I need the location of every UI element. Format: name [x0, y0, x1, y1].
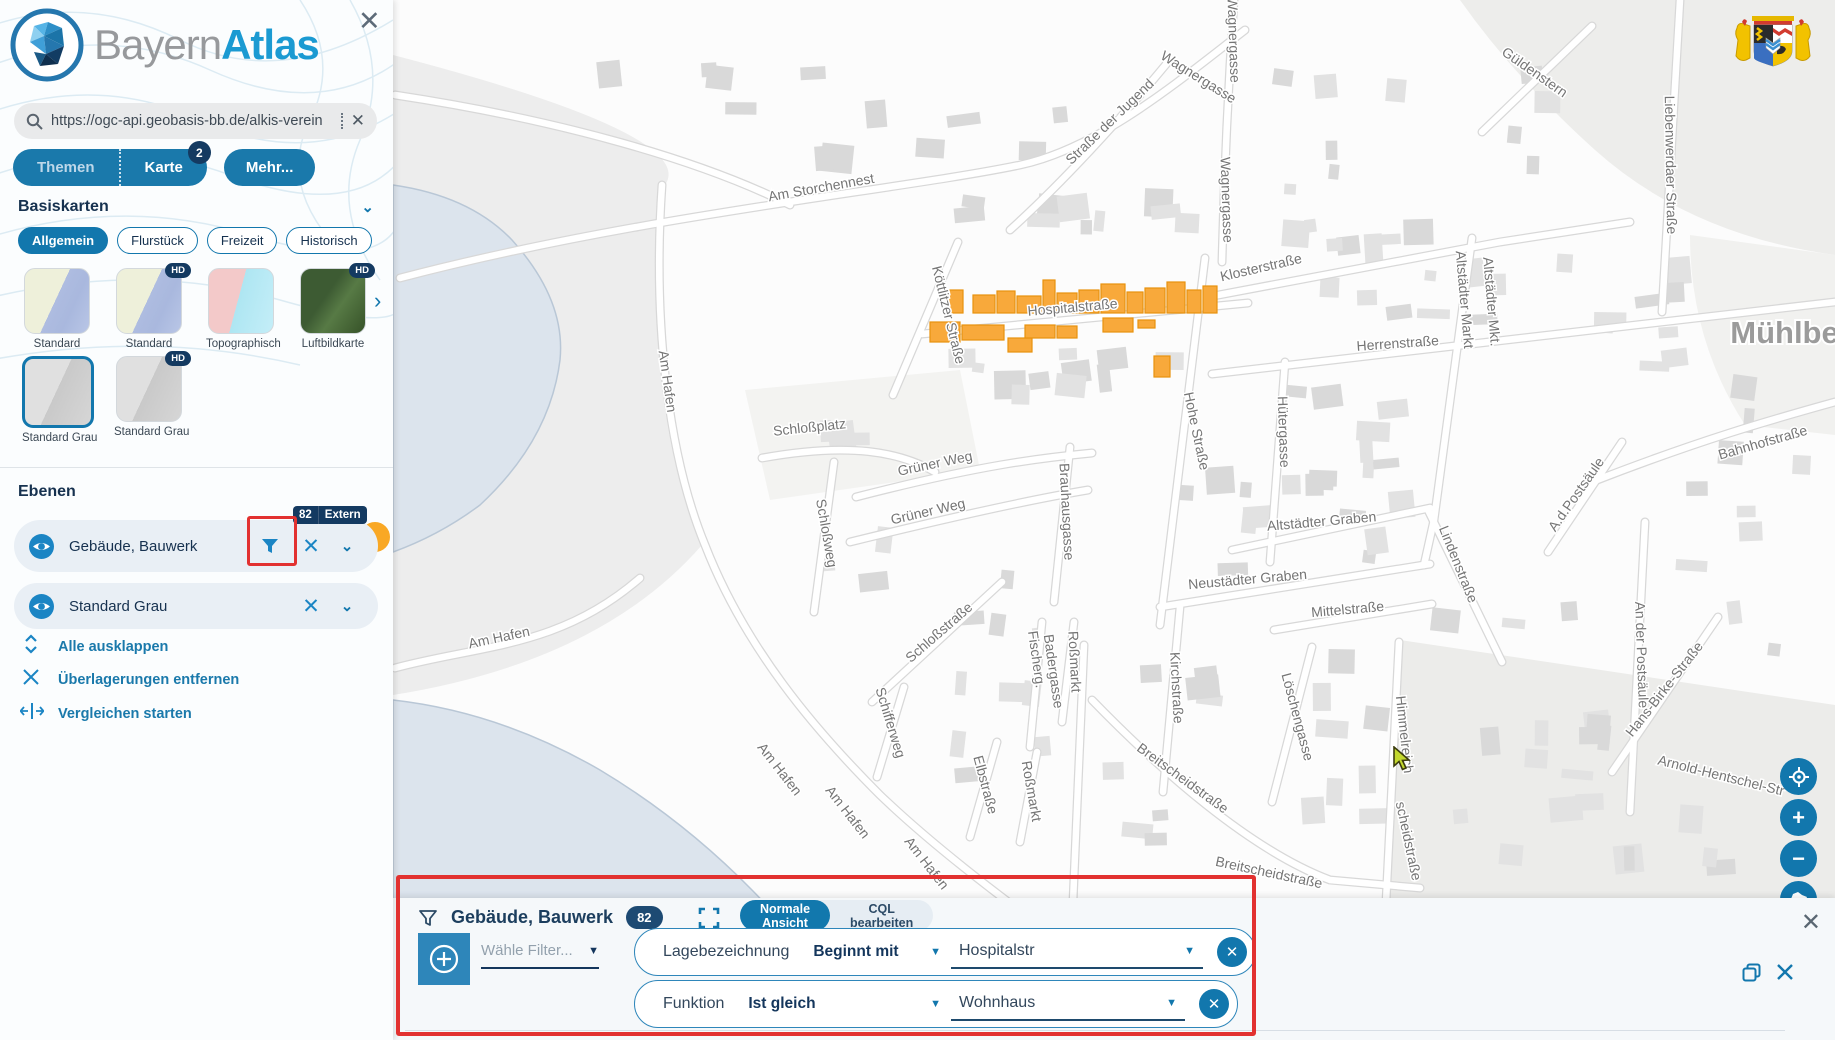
filter-funnel-icon — [418, 908, 438, 928]
city-label: Mühlberg — [1730, 315, 1835, 350]
thumbnails-next-button[interactable]: › — [374, 288, 381, 314]
search-icon — [26, 113, 43, 130]
filter-value-text: Wohnhaus — [951, 994, 1166, 1012]
result-count-badge: 82 — [626, 906, 662, 929]
zoom-out-button[interactable]: − — [1780, 840, 1817, 877]
duplicate-icon — [1742, 963, 1761, 982]
hd-badge: HD — [349, 263, 375, 278]
action-label: Überlagerungen entfernen — [58, 672, 239, 688]
geolocate-button[interactable] — [1780, 758, 1817, 795]
view-normale-ansicht[interactable]: Normale Ansicht — [740, 900, 830, 931]
basemap-filter-flurstück[interactable]: Flurstück — [117, 227, 198, 254]
basemap-thumb-standard[interactable]: HDStandard — [114, 268, 184, 350]
compare-icon — [20, 703, 44, 719]
filter-field-label: Lagebezeichnung — [663, 943, 789, 961]
basemap-thumb-label: Luftbildkarte — [298, 338, 368, 350]
basemaps-heading: Basiskarten — [18, 198, 109, 216]
layer-filter-icon — [260, 536, 280, 556]
tab-more[interactable]: Mehr... — [224, 149, 316, 186]
expand-icon — [698, 907, 720, 929]
panel-window-controls — [1742, 962, 1795, 982]
shield-icon — [1752, 16, 1794, 66]
basemap-filter-allgemein[interactable]: Allgemein — [18, 227, 108, 254]
street-label: Breitscheidstraße — [1134, 739, 1232, 816]
chevron-down-icon: ▼ — [930, 998, 941, 1010]
text-caret — [341, 113, 343, 129]
zoom-in-button[interactable]: + — [1780, 799, 1817, 836]
filter-value-text: Hospitalstr — [951, 942, 1184, 960]
plus-circle-icon — [427, 942, 461, 976]
chevron-down-icon: ▼ — [930, 946, 941, 958]
minus-icon: − — [1792, 846, 1805, 872]
basemap-thumb-luftbildkarte[interactable]: HDLuftbildkarte — [298, 268, 368, 350]
close-icon — [1775, 962, 1795, 982]
street-label: Liebenwerdaer Straße — [1662, 96, 1680, 235]
add-filter-button[interactable] — [418, 933, 470, 985]
layers-heading: Ebenen — [18, 483, 76, 501]
basemap-preview — [22, 356, 94, 428]
action-label: Vergleichen starten — [58, 706, 192, 722]
chevron-down-icon: ▼ — [1184, 945, 1195, 957]
main-tabs: Themen Karte2 Mehr... — [13, 149, 315, 186]
plus-icon: + — [1792, 805, 1805, 831]
karte-badge: 2 — [188, 141, 211, 164]
basemap-thumb-label: Standard Grau — [22, 432, 92, 444]
basemap-thumb-label: Standard Grau — [114, 426, 184, 438]
layer-label: Standard Grau — [69, 598, 292, 615]
map-canvas[interactable]: WagnergasseWagnergasseWagnergasseStraße … — [393, 0, 1835, 1040]
layer-expand-button[interactable]: ⌄ — [330, 597, 364, 615]
basemap-thumb-label: Topographisch — [206, 338, 276, 350]
feature-filter-panel: Gebäude, Bauwerk 82 Normale AnsichtCQL b… — [393, 898, 1835, 1040]
filter-select-placeholder: Wähle Filter... — [481, 942, 573, 959]
street-label: Schloßstraße — [902, 599, 975, 666]
brand-title: BayernAtlas — [94, 21, 319, 69]
action-label: Alle ausklappen — [58, 639, 168, 655]
layer-visibility-button[interactable] — [28, 593, 55, 620]
street-label: Am Hafen — [822, 782, 873, 841]
view-toggle: Normale AnsichtCQL bearbeiten — [740, 900, 933, 931]
street-label: Roßmarkt — [1065, 631, 1084, 693]
visibility-eye-icon — [28, 533, 55, 560]
layer-label: Gebäude, Bauwerk — [69, 538, 248, 555]
view-cql-bearbeiten[interactable]: CQL bearbeiten — [830, 900, 933, 931]
street-label: Breitscheidstraße — [1214, 853, 1324, 891]
search-input[interactable] — [51, 113, 333, 129]
lion-left-icon — [1736, 19, 1750, 60]
remove-filter-button[interactable]: ✕ — [1217, 937, 1247, 967]
tab-karte[interactable]: Karte2 — [119, 149, 207, 186]
action--berlagerungen-entfernen[interactable]: Überlagerungen entfernen — [20, 668, 239, 691]
basemap-preview — [208, 268, 274, 334]
filter-value-input[interactable]: Hospitalstr▼ — [951, 935, 1203, 969]
action-alle-ausklappen[interactable]: Alle ausklappen — [20, 634, 168, 659]
street-label: Altstädter Mkt. — [1480, 256, 1504, 347]
layer-row-geb-ude-bauwerk: Gebäude, Bauwerk✕⌄ — [14, 520, 378, 572]
street-label: Lindenstraße — [1436, 523, 1482, 605]
filter-field-label: Funktion — [663, 995, 724, 1013]
sidebar: BayernAtlas ✕ ✕ Themen Karte2 Mehr... Ba… — [0, 0, 393, 1040]
basemap-filter-historisch[interactable]: Historisch — [286, 227, 371, 254]
chevron-down-icon: ▼ — [1166, 997, 1177, 1009]
chevron-down-icon: ▼ — [588, 945, 599, 957]
basemap-thumb-standard-grau[interactable]: Standard Grau — [22, 356, 92, 444]
filter-panel-title: Gebäude, Bauwerk — [451, 907, 613, 928]
street-label: Wagnergasse — [1225, 0, 1244, 83]
filter-operator-dropdown[interactable]: Beginnt mit — [813, 943, 898, 961]
geolocate-icon — [1789, 767, 1809, 787]
search-clear-button[interactable]: ✕ — [351, 111, 365, 131]
search-bar[interactable]: ✕ — [14, 103, 377, 139]
filter-row-funktion: FunktionIst gleich▼Wohnhaus▼✕ — [634, 980, 1238, 1028]
badge-count: 82 — [293, 506, 319, 524]
filter-select-dropdown[interactable]: Wähle Filter... ▼ — [481, 942, 599, 969]
street-label: A.d.Postsäule — [1545, 454, 1608, 534]
filter-value-input[interactable]: Wohnhaus▼ — [951, 987, 1185, 1021]
layer-remove-button[interactable]: ✕ — [292, 534, 330, 559]
visibility-eye-icon — [28, 593, 55, 620]
remove-filter-button[interactable]: ✕ — [1199, 989, 1229, 1019]
street-label: Straße der Jugend — [1062, 75, 1157, 167]
layer-expand-button[interactable]: ⌄ — [330, 537, 364, 555]
basemap-thumbnails: StandardHDStandardTopographischHDLuftbil… — [22, 268, 382, 450]
basemaps-section: Basiskarten ⌄ — [18, 198, 374, 216]
layer-filter-button[interactable] — [248, 536, 292, 556]
basemap-filter-freizeit[interactable]: Freizeit — [207, 227, 278, 254]
basemap-preview — [24, 268, 90, 334]
filter-panel-close-button[interactable]: ✕ — [1801, 908, 1821, 937]
bayernatlas-app: WagnergasseWagnergasseWagnergasseStraße … — [0, 0, 1835, 1040]
filter-panel-header: Gebäude, Bauwerk 82 Normale AnsichtCQL b… — [418, 906, 720, 929]
sidebar-close-button[interactable]: ✕ — [358, 6, 381, 37]
basemap-thumb-label: Standard — [22, 338, 92, 350]
bavaria-coat-of-arms — [1730, 12, 1816, 70]
expand-all-icon — [22, 634, 40, 654]
filter-row-lagebezeichnung: LagebezeichnungBeginnt mit▼Hospitalstr▼✕ — [634, 928, 1256, 976]
layer-remove-button[interactable]: ✕ — [292, 594, 330, 619]
lion-right-icon — [1796, 19, 1810, 60]
detach-panel-button[interactable] — [1742, 963, 1761, 982]
action-vergleichen-starten[interactable]: Vergleichen starten — [20, 703, 192, 724]
close-filters-button[interactable] — [1775, 962, 1795, 982]
street-label: Wagnergasse — [1218, 157, 1237, 244]
badge-tag: Extern — [319, 506, 367, 524]
divider — [0, 467, 393, 468]
street-label: Am Hafen — [754, 739, 805, 798]
street-label: Hütergasse — [1275, 396, 1293, 468]
map-svg: WagnergasseWagnergasseWagnergasseStraße … — [393, 0, 1835, 1040]
divider — [405, 1030, 1785, 1031]
basemap-thumb-label: Standard — [114, 338, 184, 350]
bayernatlas-logo-icon — [10, 8, 84, 82]
basemap-thumb-topographisch[interactable]: Topographisch — [206, 268, 276, 350]
collapse-basemaps-button[interactable]: ⌄ — [361, 198, 374, 216]
basemap-thumb-standard[interactable]: Standard — [22, 268, 92, 350]
layer-visibility-button[interactable] — [28, 533, 55, 560]
fullscreen-button[interactable] — [698, 907, 720, 929]
hd-badge: HD — [165, 351, 191, 366]
layer-row-standard-grau: Standard Grau✕⌄ — [14, 583, 378, 629]
remove-overlays-icon — [22, 668, 40, 686]
basemap-filter-pills: AllgemeinFlurstückFreizeitHistorisch — [18, 227, 372, 254]
layer-count-badge: 82 Extern — [293, 506, 367, 524]
hd-badge: HD — [165, 263, 191, 278]
brand: BayernAtlas — [10, 8, 319, 82]
tab-themen[interactable]: Themen — [13, 149, 119, 186]
basemap-thumb-standard-grau[interactable]: HDStandard Grau — [114, 356, 184, 444]
mouse-cursor — [1392, 746, 1414, 772]
filter-operator-dropdown[interactable]: Ist gleich — [748, 995, 815, 1013]
